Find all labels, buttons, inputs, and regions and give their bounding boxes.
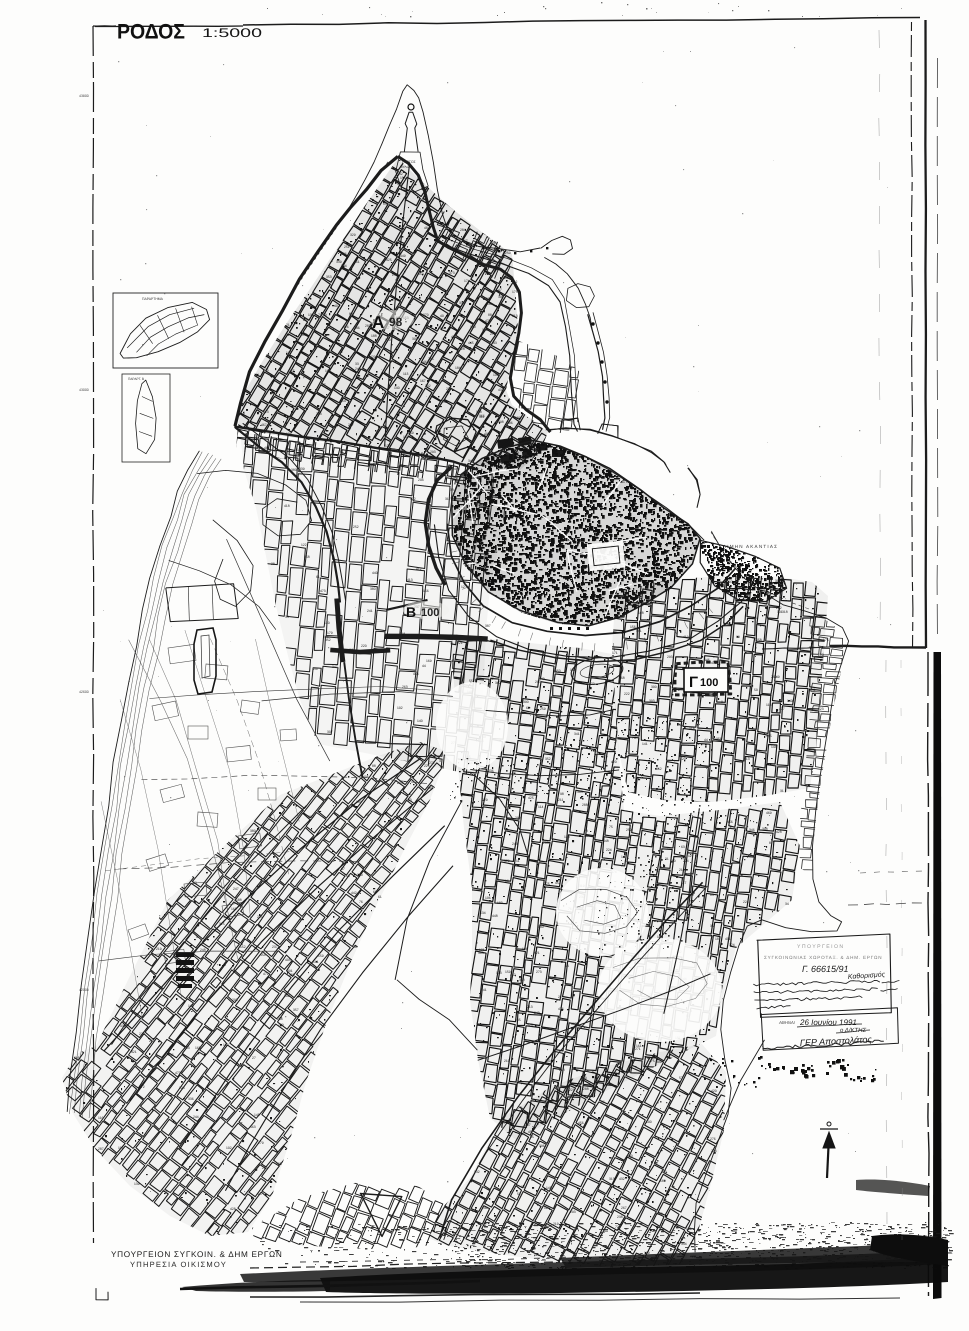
svg-text:421: 421: [534, 951, 540, 955]
svg-text:78: 78: [584, 829, 588, 833]
svg-text:259: 259: [626, 828, 632, 832]
svg-text:399: 399: [656, 1060, 662, 1064]
svg-text:420: 420: [611, 760, 617, 764]
svg-text:40: 40: [365, 813, 369, 817]
svg-text:106: 106: [484, 297, 490, 301]
svg-text:16: 16: [505, 879, 509, 883]
svg-text:476: 476: [558, 1007, 564, 1011]
svg-text:234: 234: [149, 1039, 155, 1043]
svg-text:120: 120: [680, 757, 686, 761]
svg-text:148: 148: [254, 1113, 260, 1117]
svg-text:122: 122: [301, 543, 307, 547]
svg-text:417: 417: [320, 383, 326, 387]
svg-text:ΡΟΔΟΣ: ΡΟΔΟΣ: [117, 21, 185, 44]
svg-text:33: 33: [355, 362, 359, 366]
svg-text:76: 76: [424, 326, 428, 330]
svg-text:352: 352: [545, 757, 551, 761]
svg-text:88: 88: [488, 313, 492, 317]
svg-text:236: 236: [341, 252, 347, 256]
svg-text:432: 432: [510, 973, 516, 977]
svg-text:282: 282: [425, 384, 431, 388]
svg-text:1:5000: 1:5000: [202, 26, 262, 40]
svg-text:422: 422: [678, 719, 684, 723]
svg-text:325: 325: [527, 1023, 533, 1027]
svg-text:Γ. 66615/91: Γ. 66615/91: [802, 964, 849, 974]
svg-text:238: 238: [418, 198, 424, 202]
svg-text:284: 284: [460, 228, 466, 232]
svg-text:220: 220: [361, 644, 367, 648]
svg-text:174: 174: [464, 279, 470, 283]
svg-text:357: 357: [293, 1008, 299, 1012]
svg-text:366: 366: [479, 414, 485, 418]
svg-text:360: 360: [657, 1212, 663, 1216]
svg-text:141: 141: [642, 742, 648, 746]
svg-text:130: 130: [324, 621, 330, 625]
svg-text:152: 152: [240, 945, 246, 949]
svg-text:103: 103: [223, 1043, 229, 1047]
svg-text:240: 240: [534, 1011, 540, 1015]
svg-text:17: 17: [297, 448, 301, 452]
svg-text:373: 373: [449, 271, 455, 275]
svg-text:56: 56: [518, 438, 522, 442]
svg-text:247: 247: [313, 667, 319, 671]
svg-text:183: 183: [497, 901, 503, 905]
svg-text:313: 313: [512, 314, 518, 318]
svg-text:322: 322: [410, 497, 416, 501]
svg-text:42600: 42600: [79, 690, 89, 694]
svg-text:57: 57: [679, 1076, 683, 1080]
svg-text:40: 40: [440, 314, 444, 318]
svg-text:300: 300: [412, 337, 418, 341]
svg-text:117: 117: [286, 351, 292, 355]
svg-text:259: 259: [162, 1189, 168, 1193]
svg-text:293: 293: [667, 655, 673, 659]
svg-text:187: 187: [715, 937, 721, 941]
svg-text:268: 268: [619, 676, 625, 680]
svg-text:63: 63: [681, 845, 685, 849]
svg-text:141: 141: [302, 333, 308, 337]
svg-text:130: 130: [470, 325, 476, 329]
svg-text:368: 368: [519, 978, 525, 982]
svg-text:252: 252: [353, 525, 359, 529]
svg-text:338: 338: [486, 302, 492, 306]
svg-text:55: 55: [530, 1135, 534, 1139]
svg-text:276: 276: [710, 1137, 716, 1141]
svg-text:228: 228: [262, 1166, 268, 1170]
svg-text:412: 412: [416, 567, 422, 571]
svg-text:454: 454: [260, 953, 266, 957]
svg-text:272: 272: [589, 682, 595, 686]
svg-text:143: 143: [188, 1004, 194, 1008]
svg-text:340: 340: [468, 459, 474, 463]
svg-text:233: 233: [446, 387, 452, 391]
svg-text:214: 214: [647, 1056, 653, 1060]
svg-text:76: 76: [359, 900, 363, 904]
svg-text:98: 98: [560, 792, 564, 796]
svg-text:251: 251: [441, 400, 447, 404]
svg-text:44: 44: [704, 738, 708, 742]
svg-text:134: 134: [480, 911, 486, 915]
svg-text:313: 313: [609, 1177, 615, 1181]
svg-text:89: 89: [584, 834, 588, 838]
svg-text:239: 239: [278, 1023, 284, 1027]
svg-text:250: 250: [505, 251, 511, 255]
svg-text:293: 293: [232, 998, 238, 1002]
svg-text:ΥΠΟΥΡΓΕΙΟΝ: ΥΠΟΥΡΓΕΙΟΝ: [797, 944, 845, 950]
svg-text:98: 98: [389, 315, 403, 329]
svg-text:308: 308: [762, 827, 768, 831]
svg-text:233: 233: [397, 781, 403, 785]
svg-text:297: 297: [348, 423, 354, 427]
svg-text:395: 395: [577, 790, 583, 794]
svg-text:188: 188: [371, 334, 377, 338]
svg-text:5: 5: [403, 225, 405, 229]
svg-text:279: 279: [258, 1141, 264, 1145]
svg-text:218: 218: [559, 1068, 565, 1072]
svg-text:318: 318: [583, 1069, 589, 1073]
svg-text:ΠΑΡΑΡΤ. Β: ΠΑΡΑΡΤ. Β: [128, 377, 144, 381]
svg-text:380: 380: [370, 587, 376, 591]
svg-text:467: 467: [261, 423, 267, 427]
svg-text:168: 168: [195, 1046, 201, 1050]
svg-text:132: 132: [308, 313, 314, 317]
svg-text:479: 479: [485, 319, 491, 323]
svg-text:121: 121: [408, 435, 414, 439]
svg-text:123: 123: [385, 444, 391, 448]
svg-text:ΠΑΡΑΡΤΗΜΑ: ΠΑΡΑΡΤΗΜΑ: [142, 297, 164, 301]
svg-text:26: 26: [601, 1100, 605, 1104]
svg-text:78: 78: [768, 693, 772, 697]
svg-text:221: 221: [569, 1088, 575, 1092]
svg-text:247: 247: [233, 887, 239, 891]
svg-text:449: 449: [400, 254, 406, 258]
svg-text:72: 72: [615, 1225, 619, 1229]
svg-text:265: 265: [289, 369, 295, 373]
svg-text:169: 169: [426, 659, 432, 663]
svg-text:329: 329: [350, 233, 356, 237]
svg-text:52: 52: [517, 1192, 521, 1196]
svg-text:222: 222: [139, 1032, 145, 1036]
svg-text:113: 113: [403, 372, 409, 376]
svg-text:3: 3: [243, 411, 245, 415]
svg-text:246: 246: [354, 326, 360, 330]
svg-text:69: 69: [736, 635, 740, 639]
svg-text:346: 346: [749, 828, 755, 832]
svg-text:245: 245: [355, 367, 361, 371]
svg-text:326: 326: [343, 325, 349, 329]
svg-text:94: 94: [617, 1062, 621, 1066]
svg-text:77: 77: [490, 677, 494, 681]
svg-text:379: 379: [504, 859, 510, 863]
svg-text:63: 63: [187, 997, 191, 1001]
svg-text:38: 38: [450, 488, 454, 492]
svg-text:425: 425: [528, 796, 534, 800]
svg-text:267: 267: [621, 1206, 627, 1210]
svg-text:235: 235: [257, 915, 263, 919]
svg-text:442: 442: [351, 891, 357, 895]
svg-text:36: 36: [710, 924, 714, 928]
svg-text:76: 76: [632, 736, 636, 740]
svg-text:210: 210: [679, 868, 685, 872]
svg-text:419: 419: [683, 635, 689, 639]
svg-text:450: 450: [555, 669, 561, 673]
svg-text:260: 260: [771, 675, 777, 679]
svg-text:294: 294: [418, 478, 424, 482]
svg-text:390: 390: [523, 700, 529, 704]
svg-text:196: 196: [485, 896, 491, 900]
svg-text:31: 31: [780, 789, 784, 793]
svg-text:189: 189: [515, 416, 521, 420]
svg-text:32: 32: [399, 172, 403, 176]
svg-text:67: 67: [641, 700, 645, 704]
svg-text:380: 380: [250, 829, 256, 833]
svg-text:87: 87: [451, 406, 455, 410]
svg-text:118: 118: [766, 703, 772, 707]
svg-text:362: 362: [656, 767, 662, 771]
svg-text:163: 163: [406, 798, 412, 802]
svg-text:12: 12: [502, 1164, 506, 1168]
svg-text:191: 191: [636, 629, 642, 633]
svg-text:377: 377: [369, 386, 375, 390]
svg-text:111: 111: [254, 373, 259, 377]
svg-text:100: 100: [421, 607, 439, 619]
svg-text:268: 268: [304, 555, 310, 559]
svg-text:317: 317: [445, 497, 451, 501]
svg-text:31: 31: [665, 857, 669, 861]
svg-text:Γ: Γ: [689, 674, 698, 691]
svg-text:300: 300: [651, 685, 657, 689]
svg-text:21: 21: [286, 323, 290, 327]
svg-text:448: 448: [492, 914, 498, 918]
svg-text:124: 124: [544, 1206, 550, 1210]
svg-text:362: 362: [495, 681, 501, 685]
svg-text:403: 403: [484, 432, 490, 436]
svg-text:221: 221: [457, 641, 463, 645]
svg-text:320: 320: [627, 1154, 633, 1158]
svg-text:196: 196: [493, 373, 499, 377]
svg-text:258: 258: [756, 638, 762, 642]
svg-text:140: 140: [787, 699, 793, 703]
svg-text:116: 116: [98, 1116, 104, 1120]
svg-text:139: 139: [134, 1182, 140, 1186]
svg-text:229: 229: [482, 798, 488, 802]
svg-text:12: 12: [461, 585, 465, 589]
svg-text:416: 416: [395, 278, 401, 282]
svg-text:83: 83: [349, 312, 353, 316]
svg-text:463: 463: [250, 1125, 256, 1129]
svg-text:ΥΠΗΡΕΣΙΑ ΟΙΚΙΣΜΟΥ: ΥΠΗΡΕΣΙΑ ΟΙΚΙΣΜΟΥ: [130, 1260, 227, 1269]
svg-text:205: 205: [515, 1018, 521, 1022]
svg-text:145: 145: [546, 1186, 552, 1190]
svg-text:139: 139: [402, 424, 408, 428]
svg-text:405: 405: [285, 958, 291, 962]
svg-text:100: 100: [646, 1120, 652, 1124]
svg-text:243: 243: [316, 412, 322, 416]
svg-text:350: 350: [482, 328, 488, 332]
svg-text:8: 8: [769, 841, 771, 845]
svg-text:141: 141: [481, 988, 487, 992]
svg-text:287: 287: [98, 1147, 104, 1151]
svg-text:224: 224: [683, 859, 689, 863]
svg-text:211: 211: [558, 798, 564, 802]
svg-text:432: 432: [498, 388, 504, 392]
svg-text:270: 270: [423, 313, 429, 317]
svg-text:440: 440: [372, 571, 378, 575]
svg-text:185: 185: [276, 1162, 282, 1166]
svg-text:123: 123: [818, 707, 824, 711]
svg-text:353: 353: [326, 275, 332, 279]
svg-text:Α: Α: [372, 313, 384, 332]
svg-text:4: 4: [196, 935, 198, 939]
svg-text:224: 224: [743, 900, 749, 904]
svg-text:445: 445: [468, 341, 474, 345]
svg-text:ΣΥΓΚΟΙΝΩΝΙΑΣ ΧΩΡΟΤΑΞ. & ΔΗΜ. Ε: ΣΥΓΚΟΙΝΩΝΙΑΣ ΧΩΡΟΤΑΞ. & ΔΗΜ. ΕΡΓΩΝ: [764, 955, 882, 960]
svg-text:161: 161: [636, 1044, 642, 1048]
svg-text:Β: Β: [406, 604, 416, 620]
svg-text:140: 140: [394, 386, 400, 390]
svg-text:102: 102: [397, 706, 403, 710]
svg-text:251: 251: [344, 245, 350, 249]
svg-text:292: 292: [515, 816, 521, 820]
svg-text:469: 469: [766, 811, 772, 815]
svg-text:397: 397: [727, 580, 733, 584]
svg-text:171: 171: [612, 651, 618, 655]
svg-text:288: 288: [583, 1087, 589, 1091]
svg-text:293: 293: [430, 450, 436, 454]
svg-text:213: 213: [527, 1005, 533, 1009]
svg-text:316: 316: [775, 579, 781, 583]
svg-text:336: 336: [459, 301, 465, 305]
svg-text:353: 353: [418, 272, 424, 276]
svg-text:43000: 43000: [79, 388, 89, 392]
svg-text:457: 457: [528, 1130, 534, 1134]
svg-text:32: 32: [568, 1173, 572, 1177]
svg-text:356: 356: [716, 737, 722, 741]
svg-text:447: 447: [257, 1192, 263, 1196]
svg-text:415: 415: [438, 326, 444, 330]
svg-text:224: 224: [606, 848, 612, 852]
svg-text:215: 215: [428, 357, 434, 361]
svg-text:128: 128: [459, 347, 465, 351]
svg-text:204: 204: [711, 1149, 717, 1153]
svg-text:396: 396: [539, 1144, 545, 1148]
svg-text:237: 237: [272, 945, 278, 949]
svg-text:9: 9: [721, 700, 723, 704]
svg-text:173: 173: [496, 971, 502, 975]
svg-text:363: 363: [308, 815, 314, 819]
svg-text:28: 28: [271, 562, 275, 566]
svg-text:213: 213: [263, 410, 269, 414]
svg-text:432: 432: [619, 1177, 625, 1181]
svg-text:258: 258: [491, 241, 497, 245]
svg-text:117: 117: [118, 1146, 124, 1150]
svg-text:17: 17: [531, 1178, 535, 1182]
svg-text:244: 244: [193, 1115, 199, 1119]
svg-text:43800: 43800: [79, 94, 89, 98]
svg-text:200: 200: [581, 1076, 587, 1080]
svg-text:11: 11: [516, 859, 520, 863]
svg-text:34: 34: [785, 902, 789, 906]
svg-text:243: 243: [512, 842, 518, 846]
svg-text:289: 289: [321, 313, 327, 317]
svg-text:272: 272: [490, 332, 496, 336]
svg-text:83: 83: [710, 893, 714, 897]
svg-text:275: 275: [544, 882, 550, 886]
svg-text:161: 161: [354, 260, 360, 264]
svg-text:421: 421: [131, 1050, 137, 1054]
svg-text:27: 27: [252, 1056, 256, 1060]
svg-text:413: 413: [407, 578, 413, 582]
svg-text:336: 336: [188, 1097, 194, 1101]
svg-text:47: 47: [498, 288, 502, 292]
svg-text:21: 21: [558, 995, 562, 999]
svg-text:256: 256: [344, 874, 350, 878]
svg-text:120: 120: [564, 835, 570, 839]
svg-text:167: 167: [420, 379, 426, 383]
svg-text:225: 225: [424, 764, 430, 768]
svg-text:324: 324: [729, 943, 735, 947]
svg-text:ο Δ/ΚΤΗΣ: ο Δ/ΚΤΗΣ: [840, 1027, 866, 1034]
svg-text:425: 425: [263, 368, 269, 372]
svg-text:75: 75: [609, 825, 613, 829]
svg-text:459: 459: [397, 182, 403, 186]
svg-text:419: 419: [454, 467, 460, 471]
svg-text:425: 425: [386, 258, 392, 262]
svg-text:124: 124: [179, 1086, 185, 1090]
svg-text:347: 347: [332, 665, 338, 669]
svg-text:102: 102: [570, 668, 576, 672]
svg-text:97: 97: [341, 867, 345, 871]
svg-text:300: 300: [498, 295, 504, 299]
svg-text:188: 188: [289, 973, 295, 977]
svg-text:155: 155: [400, 176, 406, 180]
svg-text:120: 120: [385, 338, 391, 342]
svg-text:102: 102: [226, 1146, 232, 1150]
svg-text:156: 156: [423, 589, 429, 593]
svg-text:222: 222: [624, 692, 630, 696]
svg-text:100: 100: [700, 677, 718, 689]
svg-text:241: 241: [367, 609, 373, 613]
svg-text:117: 117: [681, 881, 687, 885]
svg-text:59: 59: [472, 1209, 476, 1213]
svg-text:420: 420: [711, 1089, 717, 1093]
svg-text:391: 391: [287, 969, 293, 973]
svg-text:293: 293: [570, 1210, 576, 1214]
svg-text:61: 61: [378, 895, 382, 899]
svg-text:406: 406: [363, 775, 369, 779]
svg-text:420: 420: [370, 355, 376, 359]
svg-text:237: 237: [89, 1099, 95, 1103]
svg-text:195: 195: [325, 369, 331, 373]
svg-text:14: 14: [565, 964, 569, 968]
svg-text:235: 235: [677, 723, 683, 727]
svg-text:385: 385: [766, 734, 772, 738]
svg-text:336: 336: [168, 1053, 174, 1057]
svg-text:341: 341: [574, 732, 580, 736]
svg-text:35: 35: [285, 615, 289, 619]
svg-text:386: 386: [507, 421, 513, 425]
svg-text:244: 244: [269, 890, 275, 894]
svg-text:130: 130: [538, 925, 544, 929]
svg-text:108: 108: [638, 611, 644, 615]
svg-text:11: 11: [410, 252, 414, 256]
svg-text:418: 418: [284, 504, 290, 508]
svg-text:25: 25: [521, 1185, 525, 1189]
svg-text:40: 40: [334, 304, 338, 308]
svg-text:448: 448: [603, 839, 609, 843]
svg-text:238: 238: [617, 1215, 623, 1219]
svg-text:288: 288: [543, 841, 549, 845]
